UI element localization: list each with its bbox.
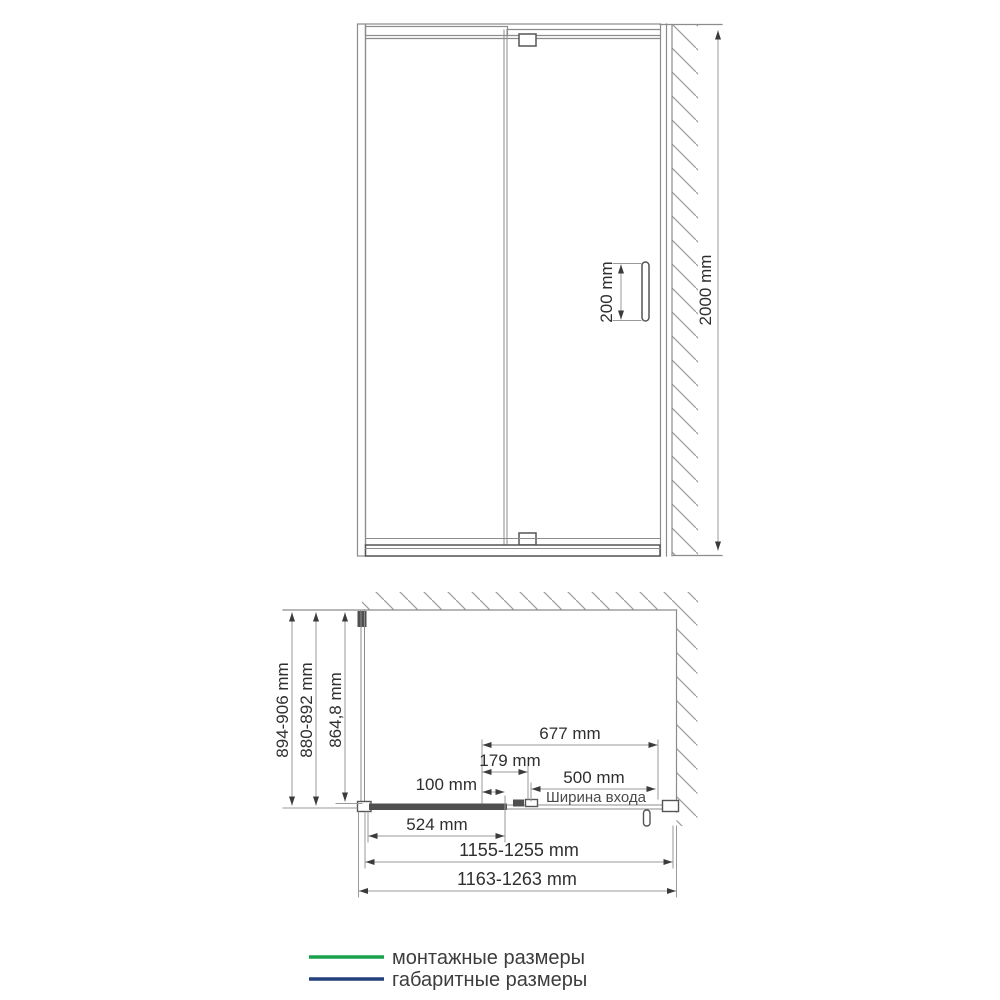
plan-center-bracket bbox=[513, 800, 524, 807]
dim-overall-depth: 894-906 mm bbox=[273, 613, 292, 805]
dim-overall-width: 1163-1263 mm bbox=[360, 869, 676, 891]
front-view: 200 mm 2000 mm bbox=[358, 24, 723, 556]
overall-width-label: 1163-1263 mm bbox=[457, 869, 577, 889]
front-wall-hatch bbox=[672, 25, 698, 555]
dim-adjust-width: 100 mm bbox=[416, 775, 504, 794]
dim-door-width: 677 mm bbox=[483, 724, 657, 745]
dim-entrance-width: 500 mm Ширина входа bbox=[532, 768, 655, 806]
fixed-panel-width-label: 524 mm bbox=[406, 815, 467, 834]
front-top-rail bbox=[366, 27, 661, 39]
overall-depth-label: 894-906 mm bbox=[273, 662, 292, 757]
entrance-caption: Ширина входа bbox=[546, 789, 647, 806]
door-width-label: 677 mm bbox=[539, 724, 600, 743]
shower-door-drawing: 200 mm 2000 mm bbox=[0, 0, 1000, 1000]
plan-right-wall-profile bbox=[663, 801, 679, 812]
legend-overall-label: габаритные размеры bbox=[392, 969, 587, 991]
dim-inner-depth: 864,8 mm bbox=[326, 613, 345, 801]
plan-wall-right-hatch bbox=[677, 610, 698, 826]
legend-item-mounting: монтажные размеры bbox=[309, 947, 585, 969]
handle-length-label: 200 mm bbox=[597, 261, 616, 322]
dim-mounting-width: 1155-1255 mm bbox=[366, 840, 672, 862]
plan-side-panel bbox=[358, 611, 367, 804]
plan-view: 894-906 mm 880-892 mm 864,8 mm 677 mm bbox=[273, 592, 698, 897]
inner-depth-label: 864,8 mm bbox=[326, 672, 345, 748]
plan-wall-top-hatch bbox=[362, 592, 698, 610]
legend: монтажные размеры габаритные размеры bbox=[309, 947, 587, 991]
front-frame bbox=[358, 24, 667, 556]
front-top-hinge bbox=[519, 34, 536, 46]
dim-height: 2000 mm bbox=[696, 31, 718, 550]
door-handle bbox=[642, 262, 649, 321]
technical-drawing-page: 200 mm 2000 mm bbox=[0, 0, 1000, 1000]
height-label: 2000 mm bbox=[696, 255, 715, 326]
dim-overlap-width: 179 mm bbox=[479, 751, 540, 772]
adjust-width-label: 100 mm bbox=[416, 775, 477, 794]
plan-door-handle bbox=[644, 810, 651, 826]
overlap-width-label: 179 mm bbox=[479, 751, 540, 770]
entrance-width-label: 500 mm bbox=[563, 768, 624, 787]
legend-item-overall: габаритные размеры bbox=[309, 969, 587, 991]
dim-handle-length: 200 mm bbox=[597, 261, 641, 322]
legend-mounting-label: монтажные размеры bbox=[392, 947, 585, 969]
dim-mounting-depth: 880-892 mm bbox=[297, 613, 316, 805]
mounting-depth-label: 880-892 mm bbox=[297, 662, 316, 757]
front-left-profile bbox=[358, 24, 366, 556]
plan-sliding-door-bar bbox=[369, 804, 507, 811]
dim-fixed-panel-width: 524 mm bbox=[369, 815, 504, 836]
front-bottom-rail bbox=[366, 539, 661, 557]
mounting-width-label: 1155-1255 mm bbox=[459, 840, 579, 860]
front-glass-divider bbox=[504, 30, 507, 545]
